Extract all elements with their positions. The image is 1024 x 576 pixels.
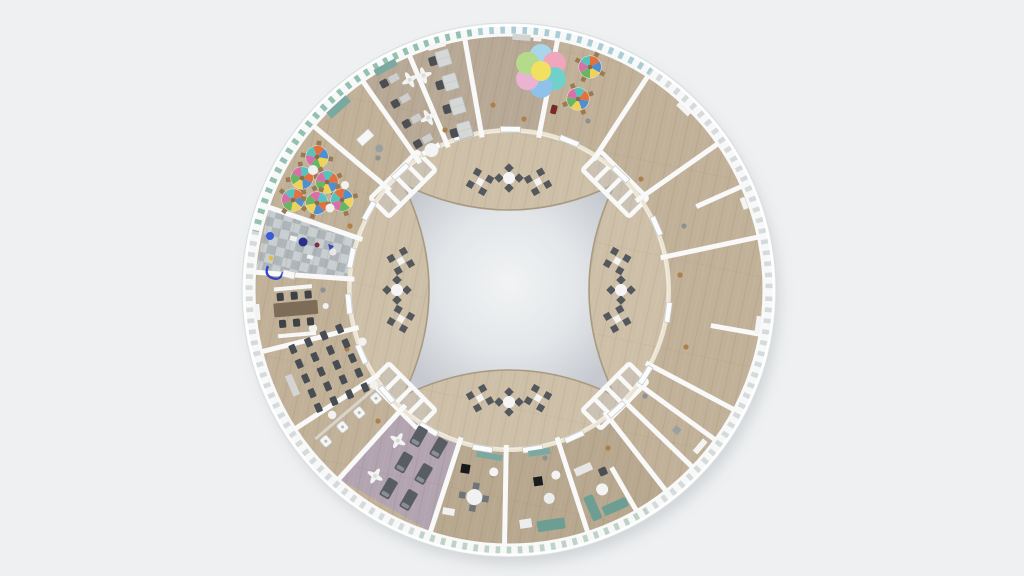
floorplan-canvas: flower-rug room kids activity room meeti… bbox=[0, 0, 1024, 576]
floorplan-svg: flower-rug room kids activity room meeti… bbox=[0, 0, 1024, 576]
atrium bbox=[403, 184, 615, 396]
